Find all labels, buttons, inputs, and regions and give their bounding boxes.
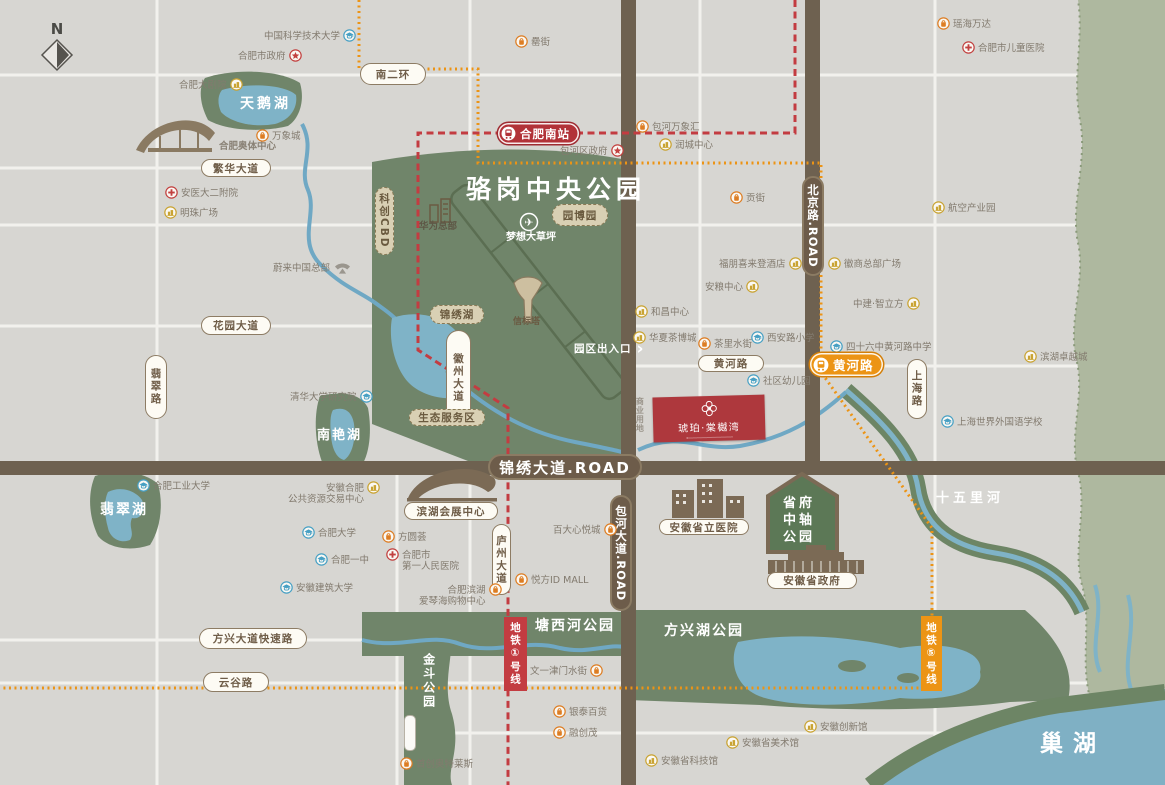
star-icon [611, 144, 624, 157]
shiwuli-river-label: 十五里河 [936, 491, 1004, 508]
poi-label: 安徽建筑大学 [296, 581, 353, 594]
biz-icon [1024, 350, 1037, 363]
poi-label: 华夏茶博城 [649, 331, 697, 344]
poi-marker: 徽商总部广场 [828, 257, 901, 270]
road-pill-anhui-provincial-government: 安徽省政府 [767, 572, 857, 589]
poi-label: 航空产业园 [948, 201, 996, 214]
biz-icon [230, 78, 243, 91]
poi-marker: 万象城 [256, 129, 301, 142]
station-label: 黄河路 [833, 355, 874, 374]
road-name-plate-jinxiu-avenue-plate: 锦绣大道.ROAD [488, 454, 642, 480]
poi-label: 安徽省美术馆 [742, 736, 799, 749]
school-icon [747, 374, 760, 387]
cross-icon [165, 186, 178, 199]
station-label: 合肥南站 [520, 126, 570, 142]
road-pill-fanhua-avenue: 繁华大道 [201, 159, 271, 177]
poi-marker: 蔚来中国总部 [273, 261, 352, 276]
park-zone-pill-kechuang-cbd: 科创CBD [375, 187, 394, 255]
shop-icon [937, 17, 950, 30]
poi-marker: 合肥市政府 [238, 49, 302, 62]
luogang-park-title: 骆岗中央公园 [466, 174, 646, 207]
east-green-belt [1074, 0, 1165, 698]
biz-icon [633, 331, 646, 344]
poi-label: 首创奥特莱斯 [416, 757, 473, 770]
poi-label: 包河万象汇 [652, 120, 700, 133]
poi-marker: 合肥大学 [302, 526, 356, 539]
school-icon [315, 553, 328, 566]
school-icon [751, 331, 764, 344]
poi-marker: 中国科学技术大学 [264, 29, 356, 42]
school-icon [302, 526, 315, 539]
shop-icon [382, 530, 395, 543]
poi-marker: 银泰百货 [553, 705, 607, 718]
baohe-avenue-road [621, 0, 636, 785]
poi-label: 安医大二附院 [181, 186, 238, 199]
hefei-south-station-badge: 合肥南站 [498, 123, 579, 144]
metro-icon [813, 357, 829, 373]
chevron-right-icon: › [637, 344, 645, 354]
road-pill-shanghai-road: 上海路 [907, 359, 927, 419]
compass-n-label: N [51, 20, 64, 38]
poi-marker: 航空产业园 [932, 201, 996, 214]
biz-icon [932, 201, 945, 214]
olympic-center-label: 合肥奥体中心 [219, 141, 276, 153]
metro-line-5-tag: 地铁⑤号线 [921, 616, 942, 691]
poi-marker: 安徽创新馆 [804, 720, 868, 733]
project-site-badge: 琥珀·棠樾湾 [652, 395, 765, 443]
school-icon [830, 340, 843, 353]
poi-label: 蔚来中国总部 [273, 261, 330, 274]
shop-icon [515, 35, 528, 48]
poi-marker: 合肥市儿童医院 [962, 41, 1045, 54]
poi-marker: 润城中心 [659, 138, 713, 151]
metro-line-1-label: 地铁①号线 [508, 622, 523, 686]
metro-line-5-label: 地铁⑤号线 [924, 622, 939, 686]
metro-line-1-tag: 地铁①号线 [504, 617, 527, 691]
biz-icon [804, 720, 817, 733]
location-map: ✈ N 合肥南站 黄河路 地铁①号线 地铁⑤号线 琥珀·棠樾湾 园区出入口 › … [0, 0, 1165, 785]
jindou-park-label: 金斗公园 [420, 653, 436, 709]
poi-label: 徽商总部广场 [844, 257, 901, 270]
poi-label: 西安路小学 [767, 331, 815, 344]
poi-marker: 安医大二附院 [165, 186, 238, 199]
poi-marker: 安徽省科技馆 [645, 754, 718, 767]
poi-label: 合肥市儿童医院 [978, 41, 1045, 54]
shop-icon [636, 120, 649, 133]
biz-icon [746, 280, 759, 293]
shop-icon [256, 129, 269, 142]
dream-lawn-label: 梦想大草坪 [506, 231, 556, 244]
poi-label: 茶里水街 [714, 337, 752, 350]
road-name-plate-beijing-road-plate: 北京路.ROAD [802, 176, 824, 276]
poi-label: 方圆荟 [398, 530, 427, 543]
road-pill-yungu-road: 云谷路 [203, 672, 269, 692]
poi-label: 明珠广场 [180, 206, 218, 219]
poi-marker: 西安路小学 [751, 331, 815, 344]
road-pill-nanerhuan-road: 南二环 [360, 63, 426, 85]
biz-icon [635, 305, 648, 318]
compass-rose-icon [40, 38, 74, 72]
shop-icon [698, 337, 711, 350]
poi-label: 中建·智立方 [853, 297, 904, 310]
poi-marker: 安徽建筑大学 [280, 581, 353, 594]
poi-label: 合肥一中 [331, 553, 369, 566]
poi-label: 万象城 [272, 129, 301, 142]
poi-marker: 文一津门水街 [530, 664, 603, 677]
poi-marker: 明珠广场 [164, 206, 218, 219]
biz-icon [367, 481, 380, 494]
poi-label: 合肥工业大学 [153, 479, 210, 492]
nanyan-lake-label: 南艳湖 [317, 428, 362, 445]
project-name: 琥珀·棠樾湾 [678, 418, 741, 435]
poi-label: 安徽省科技馆 [661, 754, 718, 767]
provincial-axis-park-label: 省府 中轴 公园 [783, 496, 815, 547]
school-icon [280, 581, 293, 594]
school-icon [360, 390, 373, 403]
poi-marker: 百大心悦城 [553, 523, 617, 536]
poi-label: 四十六中黄河路中学 [846, 340, 932, 353]
poi-marker: 瑶海万达 [937, 17, 991, 30]
poi-marker: 包河区政府 [560, 144, 624, 157]
poi-label: 润城中心 [675, 138, 713, 151]
poi-marker: 清华大学研究院 [290, 390, 373, 403]
beacon-tower-label: 信标塔 [513, 317, 540, 329]
entrance-text: 园区出入口 [574, 341, 632, 356]
poi-label: 瑶海万达 [953, 17, 991, 30]
shop-icon [604, 523, 617, 536]
poi-marker: 包河万象汇 [636, 120, 700, 133]
poi-label: 合肥大学 [318, 526, 356, 539]
biz-icon [726, 736, 739, 749]
nio-icon [333, 261, 352, 276]
star-icon [289, 49, 302, 62]
shop-icon [553, 705, 566, 718]
road-pill-binhu-expo-center: 滨湖会展中心 [404, 502, 498, 520]
train-icon [501, 126, 516, 141]
shop-icon [515, 573, 528, 586]
svg-text:✈: ✈ [524, 216, 533, 229]
poi-label: 悦方ID MALL [531, 573, 588, 586]
shop-icon [553, 726, 566, 739]
poi-marker: 合肥一中 [315, 553, 369, 566]
poi-marker: 悦方ID MALL [515, 573, 588, 586]
project-flower-logo-icon [699, 399, 718, 418]
park-zone-pill-jinxiu-lake-pill: 锦绣湖 [430, 305, 484, 324]
shop-icon [730, 191, 743, 204]
commercial-land-label: 商业用地 [634, 397, 644, 433]
poi-label: 百大心悦城 [553, 523, 601, 536]
school-icon [137, 479, 150, 492]
poi-label: 滨湖卓越城 [1040, 350, 1088, 363]
poi-marker: 合肥工业大学 [137, 479, 210, 492]
park-zone-pill-eco-service-zone: 生态服务区 [409, 409, 485, 426]
poi-label: 中国科学技术大学 [264, 29, 340, 42]
poi-marker: 安徽省美术馆 [726, 736, 799, 749]
poi-label: 安徽合肥 公共资源交易中心 [288, 481, 364, 505]
compass: N [40, 20, 74, 72]
poi-marker: 四十六中黄河路中学 [830, 340, 932, 353]
shop-icon [400, 757, 413, 770]
swan-lake-label: 天鹅湖 [240, 95, 291, 113]
fangxinghu-park-label: 方兴湖公园 [664, 622, 744, 640]
road-pill-feicui-road: 翡翠路 [145, 355, 167, 419]
poi-label: 安徽创新馆 [820, 720, 868, 733]
project-subtitle-rule [686, 436, 732, 438]
poi-marker: 安粮中心 [705, 280, 759, 293]
poi-label: 融创茂 [569, 726, 598, 739]
cross-icon [386, 548, 399, 561]
poi-marker: 福朋喜来登酒店 [719, 257, 802, 270]
road-name-plate-baohe-avenue-plate: 包河大道.ROAD [610, 495, 632, 611]
poi-label: 合肥市政府 [238, 49, 286, 62]
poi-label: 安粮中心 [705, 280, 743, 293]
poi-marker: 贡街 [730, 191, 765, 204]
poi-label: 福朋喜来登酒店 [719, 257, 786, 270]
park-zone-pill-yuanboyuan: 园博园 [552, 204, 608, 226]
poi-label: 罍街 [531, 35, 550, 48]
poi-marker: 合肥滨湖 爱琴海购物中心 [419, 583, 502, 607]
huawei-hq-label: 华为总部 [419, 221, 457, 233]
road-pill-huanghe-road: 黄河路 [698, 355, 764, 372]
biz-icon [645, 754, 658, 767]
poi-label: 包河区政府 [560, 144, 608, 157]
tangxihe-park-label: 塘西河公园 [535, 617, 615, 635]
poi-label: 社区幼儿园 [763, 374, 811, 387]
poi-label: 银泰百货 [569, 705, 607, 718]
poi-marker: 和昌中心 [635, 305, 689, 318]
poi-marker: 中建·智立方 [853, 297, 920, 310]
cross-icon [962, 41, 975, 54]
poi-label: 和昌中心 [651, 305, 689, 318]
school-icon [941, 415, 954, 428]
poi-label: 合肥滨湖 爱琴海购物中心 [419, 583, 486, 607]
poi-marker: 安徽合肥 公共资源交易中心 [288, 481, 380, 505]
poi-marker: 合肥市 第一人民医院 [386, 548, 459, 572]
poi-marker: 滨湖卓越城 [1024, 350, 1088, 363]
chao-lake-label: 巢湖 [1040, 730, 1106, 760]
biz-icon [828, 257, 841, 270]
poi-marker: 融创茂 [553, 726, 598, 739]
poi-label: 合肥市 第一人民医院 [402, 548, 459, 572]
poi-marker: 首创奥特莱斯 [400, 757, 473, 770]
poi-marker: 上海世界外国语学校 [941, 415, 1043, 428]
biz-icon [164, 206, 177, 219]
poi-marker: 茶里水街 [698, 337, 752, 350]
poi-label: 贡街 [746, 191, 765, 204]
shop-icon [590, 664, 603, 677]
feicui-lake-label: 翡翠湖 [100, 501, 148, 519]
poi-label: 合肥大剧院 [179, 78, 227, 91]
biz-icon [789, 257, 802, 270]
road-pill-huayuan-avenue: 花园大道 [201, 316, 271, 335]
scale-bar [404, 715, 416, 751]
poi-label: 清华大学研究院 [290, 390, 357, 403]
road-pill-fangxing-expressway: 方兴大道快速路 [199, 628, 307, 649]
poi-marker: 罍街 [515, 35, 550, 48]
poi-marker: 华夏茶博城 [633, 331, 697, 344]
poi-label: 上海世界外国语学校 [957, 415, 1043, 428]
poi-marker: 社区幼儿园 [747, 374, 811, 387]
biz-icon [907, 297, 920, 310]
poi-label: 文一津门水街 [530, 664, 587, 677]
school-icon [343, 29, 356, 42]
biz-icon [659, 138, 672, 151]
poi-marker: 合肥大剧院 [179, 78, 243, 91]
road-pill-anhui-provincial-hospital: 安徽省立医院 [659, 519, 749, 535]
poi-marker: 方圆荟 [382, 530, 427, 543]
shop-icon [489, 583, 502, 596]
huanghe-road-station-badge: 黄河路 [810, 353, 883, 376]
